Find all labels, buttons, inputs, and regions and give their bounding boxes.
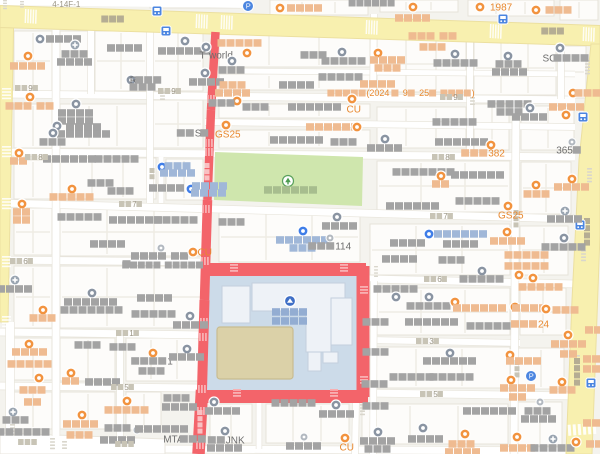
svg-text:382: 382 xyxy=(488,149,505,160)
svg-text:9: 9 xyxy=(403,88,408,98)
svg-text:): ) xyxy=(472,88,475,98)
svg-text:1987: 1987 xyxy=(490,3,513,14)
svg-text:GS25: GS25 xyxy=(498,211,524,222)
svg-text:CU: CU xyxy=(340,443,354,454)
svg-text:P: P xyxy=(246,2,251,11)
svg-text:4-14F-1: 4-14F-1 xyxy=(52,0,81,9)
svg-text:114: 114 xyxy=(335,242,351,253)
svg-text:CU: CU xyxy=(198,248,212,259)
svg-text:25: 25 xyxy=(419,88,429,98)
svg-text:(2024: (2024 xyxy=(366,88,389,98)
svg-text:GS25: GS25 xyxy=(215,130,241,141)
svg-text:P: P xyxy=(529,372,534,381)
svg-text:365: 365 xyxy=(556,146,573,157)
svg-text:T: T xyxy=(200,51,206,62)
svg-text:CU: CU xyxy=(347,105,361,116)
svg-text:24: 24 xyxy=(538,320,550,331)
